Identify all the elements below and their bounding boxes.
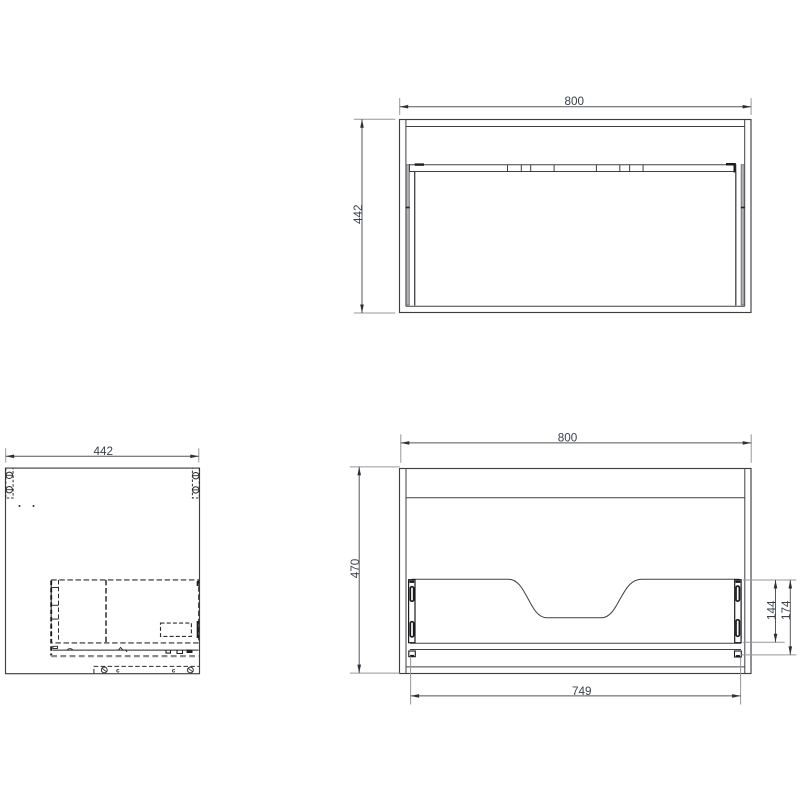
svg-text:144: 144 <box>765 600 778 620</box>
svg-text:c: c <box>116 668 120 675</box>
svg-text:442: 442 <box>352 205 365 225</box>
svg-text:c: c <box>172 668 176 675</box>
svg-text:800: 800 <box>558 432 578 445</box>
svg-text:442: 442 <box>94 445 114 458</box>
svg-text:800: 800 <box>565 95 585 108</box>
svg-text:749: 749 <box>572 685 592 698</box>
svg-text:470: 470 <box>349 558 362 578</box>
svg-text:174: 174 <box>780 600 793 620</box>
